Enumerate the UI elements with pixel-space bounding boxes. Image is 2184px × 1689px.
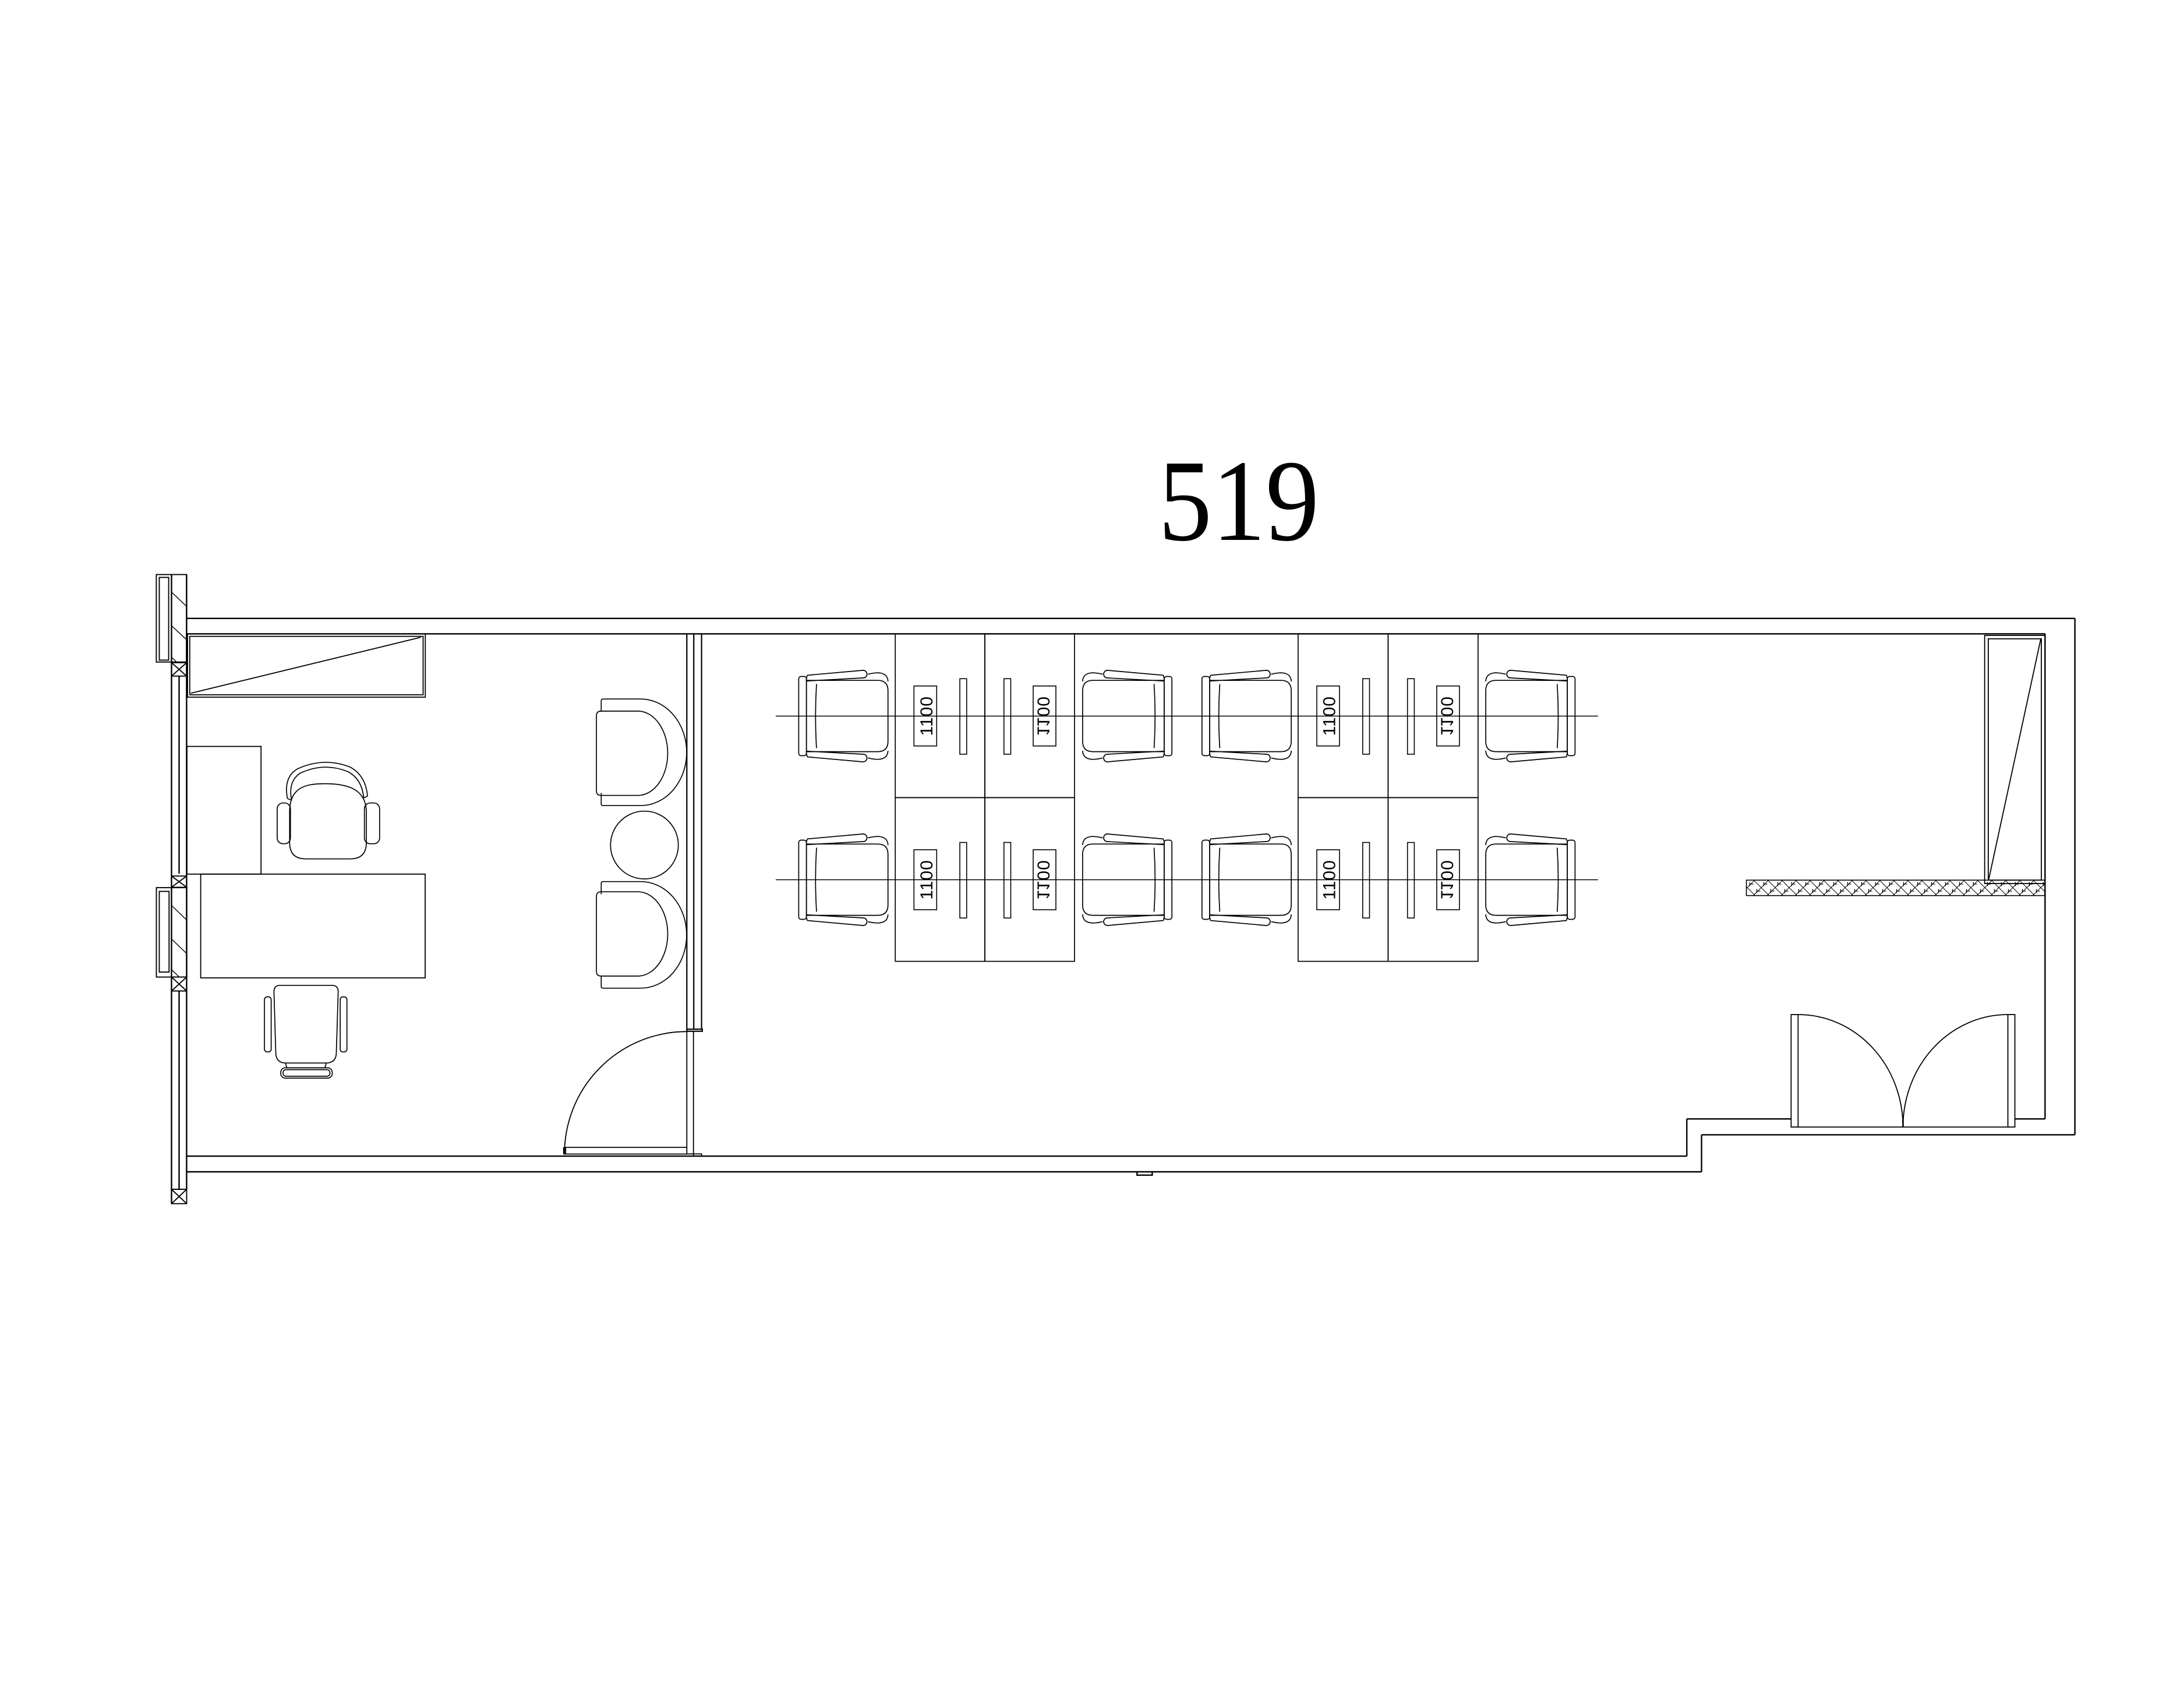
svg-text:519: 519 [1158, 437, 1319, 566]
